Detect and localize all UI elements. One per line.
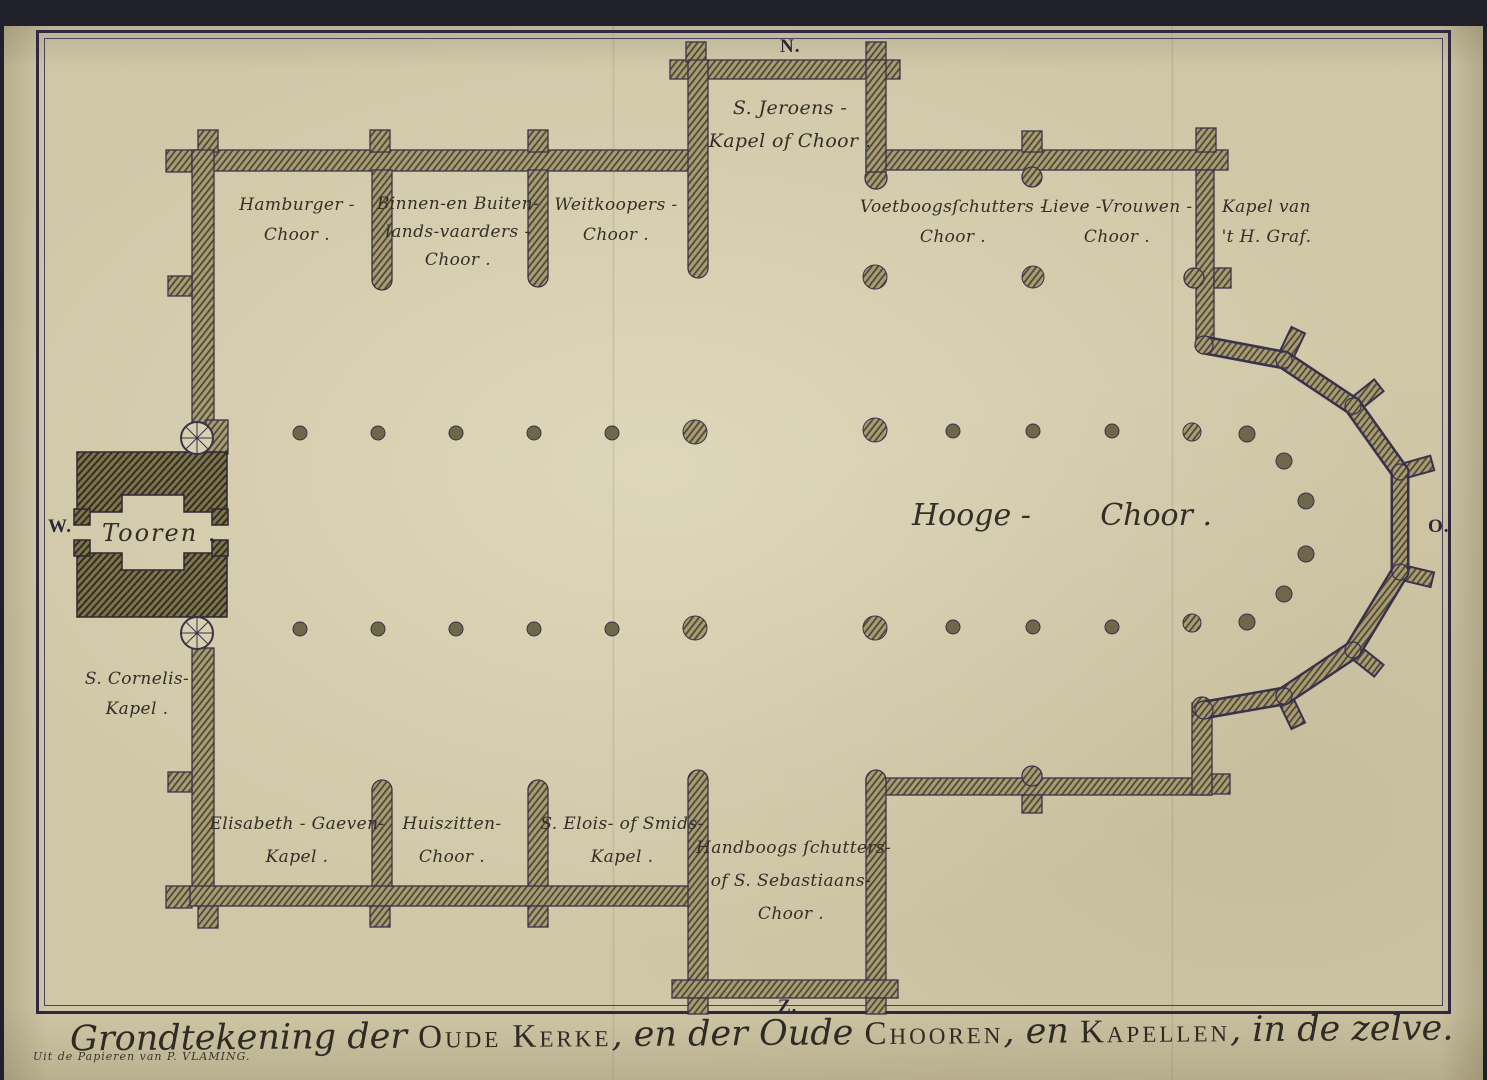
- buttress: [370, 130, 390, 152]
- label-line: Handboogs ſchutters-: [696, 832, 886, 865]
- label-line: Kapel van: [1204, 192, 1329, 222]
- label-line: of S. Sebastiaans-: [696, 865, 886, 898]
- label-line: S. Jeroens -: [650, 92, 930, 125]
- wall-respond: [1184, 268, 1204, 288]
- label-line: Weitkoopers -: [531, 190, 701, 220]
- east-end: [1184, 170, 1425, 719]
- buttress: [1212, 774, 1230, 794]
- buttress: [686, 42, 706, 62]
- title-script: , in de zelve.: [1230, 1008, 1454, 1050]
- buttress: [198, 130, 218, 152]
- choir-aisle-columns: [863, 265, 1044, 289]
- label-weitkoopers-choor: Weitkoopers - Choor .: [531, 190, 701, 250]
- compass-west: W.: [48, 516, 72, 538]
- crossing-columns-south: [683, 614, 1201, 640]
- wall-respond: [1022, 167, 1042, 187]
- label-huiszitten-choor: Huiszitten- Choor .: [372, 808, 532, 874]
- title-caps: Kapellen: [1080, 1013, 1230, 1050]
- label-line: S. Cornelis-: [62, 664, 212, 694]
- label-line: lands-vaarders -: [368, 218, 548, 246]
- label-tooren: Tooren .: [102, 518, 217, 548]
- title-caps: Oude Kerke: [418, 1018, 612, 1056]
- label-line: Choor .: [858, 222, 1048, 252]
- column-grid: [293, 265, 1314, 640]
- tower-foot: [74, 540, 90, 556]
- label-line: Elisabeth - Gaeven-: [202, 808, 392, 841]
- buttress: [198, 906, 218, 928]
- label-binnen-buitenlandsvaarders-choor: Binnen-en Buiten- lands-vaarders - Choor…: [368, 190, 548, 274]
- label-line: Voetboogsſchutters -: [858, 192, 1048, 222]
- label-elois-smids-kapel: S. Elois- of Smids- Kapel .: [532, 808, 712, 874]
- label-line: Binnen-en Buiten-: [368, 190, 548, 218]
- wall-respond: [1022, 766, 1042, 786]
- buttress: [528, 130, 548, 152]
- label-line: Kapel .: [62, 694, 212, 724]
- buttress: [688, 998, 708, 1014]
- compass-north: N.: [780, 36, 800, 58]
- label-line: Choor .: [1100, 498, 1212, 533]
- apse-columns: [1239, 426, 1314, 630]
- credit-line: Uit de Papieren van P. VLAMING.: [33, 1050, 250, 1063]
- corner-buttress: [166, 150, 192, 172]
- buttress: [1022, 131, 1042, 152]
- label-line: Kapel .: [532, 841, 712, 874]
- label-line: Huiszitten-: [372, 808, 532, 841]
- label-line: Lieve -Vrouwen -: [1032, 192, 1202, 222]
- label-jeroens-kapel: S. Jeroens - Kapel of Choor .: [650, 92, 930, 158]
- label-line: S. Elois- of Smids-: [532, 808, 712, 841]
- label-line: Choor .: [531, 220, 701, 250]
- label-line: Kapel .: [202, 841, 392, 874]
- buttress: [1022, 795, 1042, 813]
- tower-foot: [74, 509, 90, 525]
- spiral-stair-icon: [181, 617, 213, 649]
- label-line: Choor .: [1032, 222, 1202, 252]
- title-script: , en der Oude: [611, 1013, 864, 1055]
- label-hamburger-choor: Hamburger - Choor .: [212, 190, 382, 250]
- title-caps: Chooren: [864, 1015, 1003, 1052]
- label-voetboogsschutters-choor: Voetboogsſchutters - Choor .: [858, 192, 1048, 252]
- label-handboogsschutters-choor: Handboogs ſchutters- of S. Sebastiaans- …: [696, 832, 886, 931]
- corner-buttress: [166, 886, 192, 908]
- tower-pier-south: [77, 553, 227, 617]
- label-line: Kapel of Choor .: [650, 125, 930, 158]
- title-script: , en: [1003, 1011, 1080, 1052]
- label-line: Choor .: [696, 898, 886, 931]
- label-line: Hooge -: [912, 498, 1031, 533]
- buttress: [528, 906, 548, 927]
- label-elisabeth-gaeven-kapel: Elisabeth - Gaeven- Kapel .: [202, 808, 392, 874]
- crossing-columns-north: [683, 418, 1201, 444]
- buttress: [168, 276, 192, 296]
- label-kapel-h-graf: Kapel van 't H. Graf.: [1204, 192, 1329, 252]
- label-line: Hamburger -: [212, 190, 382, 220]
- compass-east: O.: [1428, 516, 1450, 538]
- label-line: Choor .: [212, 220, 382, 250]
- west-wall-upper: [192, 150, 214, 424]
- nave-south-wall: [190, 886, 690, 906]
- buttress: [866, 42, 886, 62]
- label-cornelis-kapel: S. Cornelis- Kapel .: [62, 664, 212, 724]
- buttress: [1214, 268, 1231, 288]
- label-lieve-vrouwen-choor: Lieve -Vrouwen - Choor .: [1032, 192, 1202, 252]
- spiral-stair-icon: [181, 422, 213, 454]
- label-line: Choor .: [372, 841, 532, 874]
- label-line: Choor .: [368, 246, 548, 274]
- label-hooge-choor: Hooge - Choor .: [912, 498, 1212, 533]
- nave-north-wall: [190, 150, 690, 171]
- buttress: [370, 906, 390, 927]
- label-line: 't H. Graf.: [1204, 222, 1329, 252]
- buttress: [1196, 128, 1216, 152]
- buttress: [168, 772, 192, 792]
- buttress: [866, 998, 886, 1014]
- tower-pier-north: [77, 452, 227, 512]
